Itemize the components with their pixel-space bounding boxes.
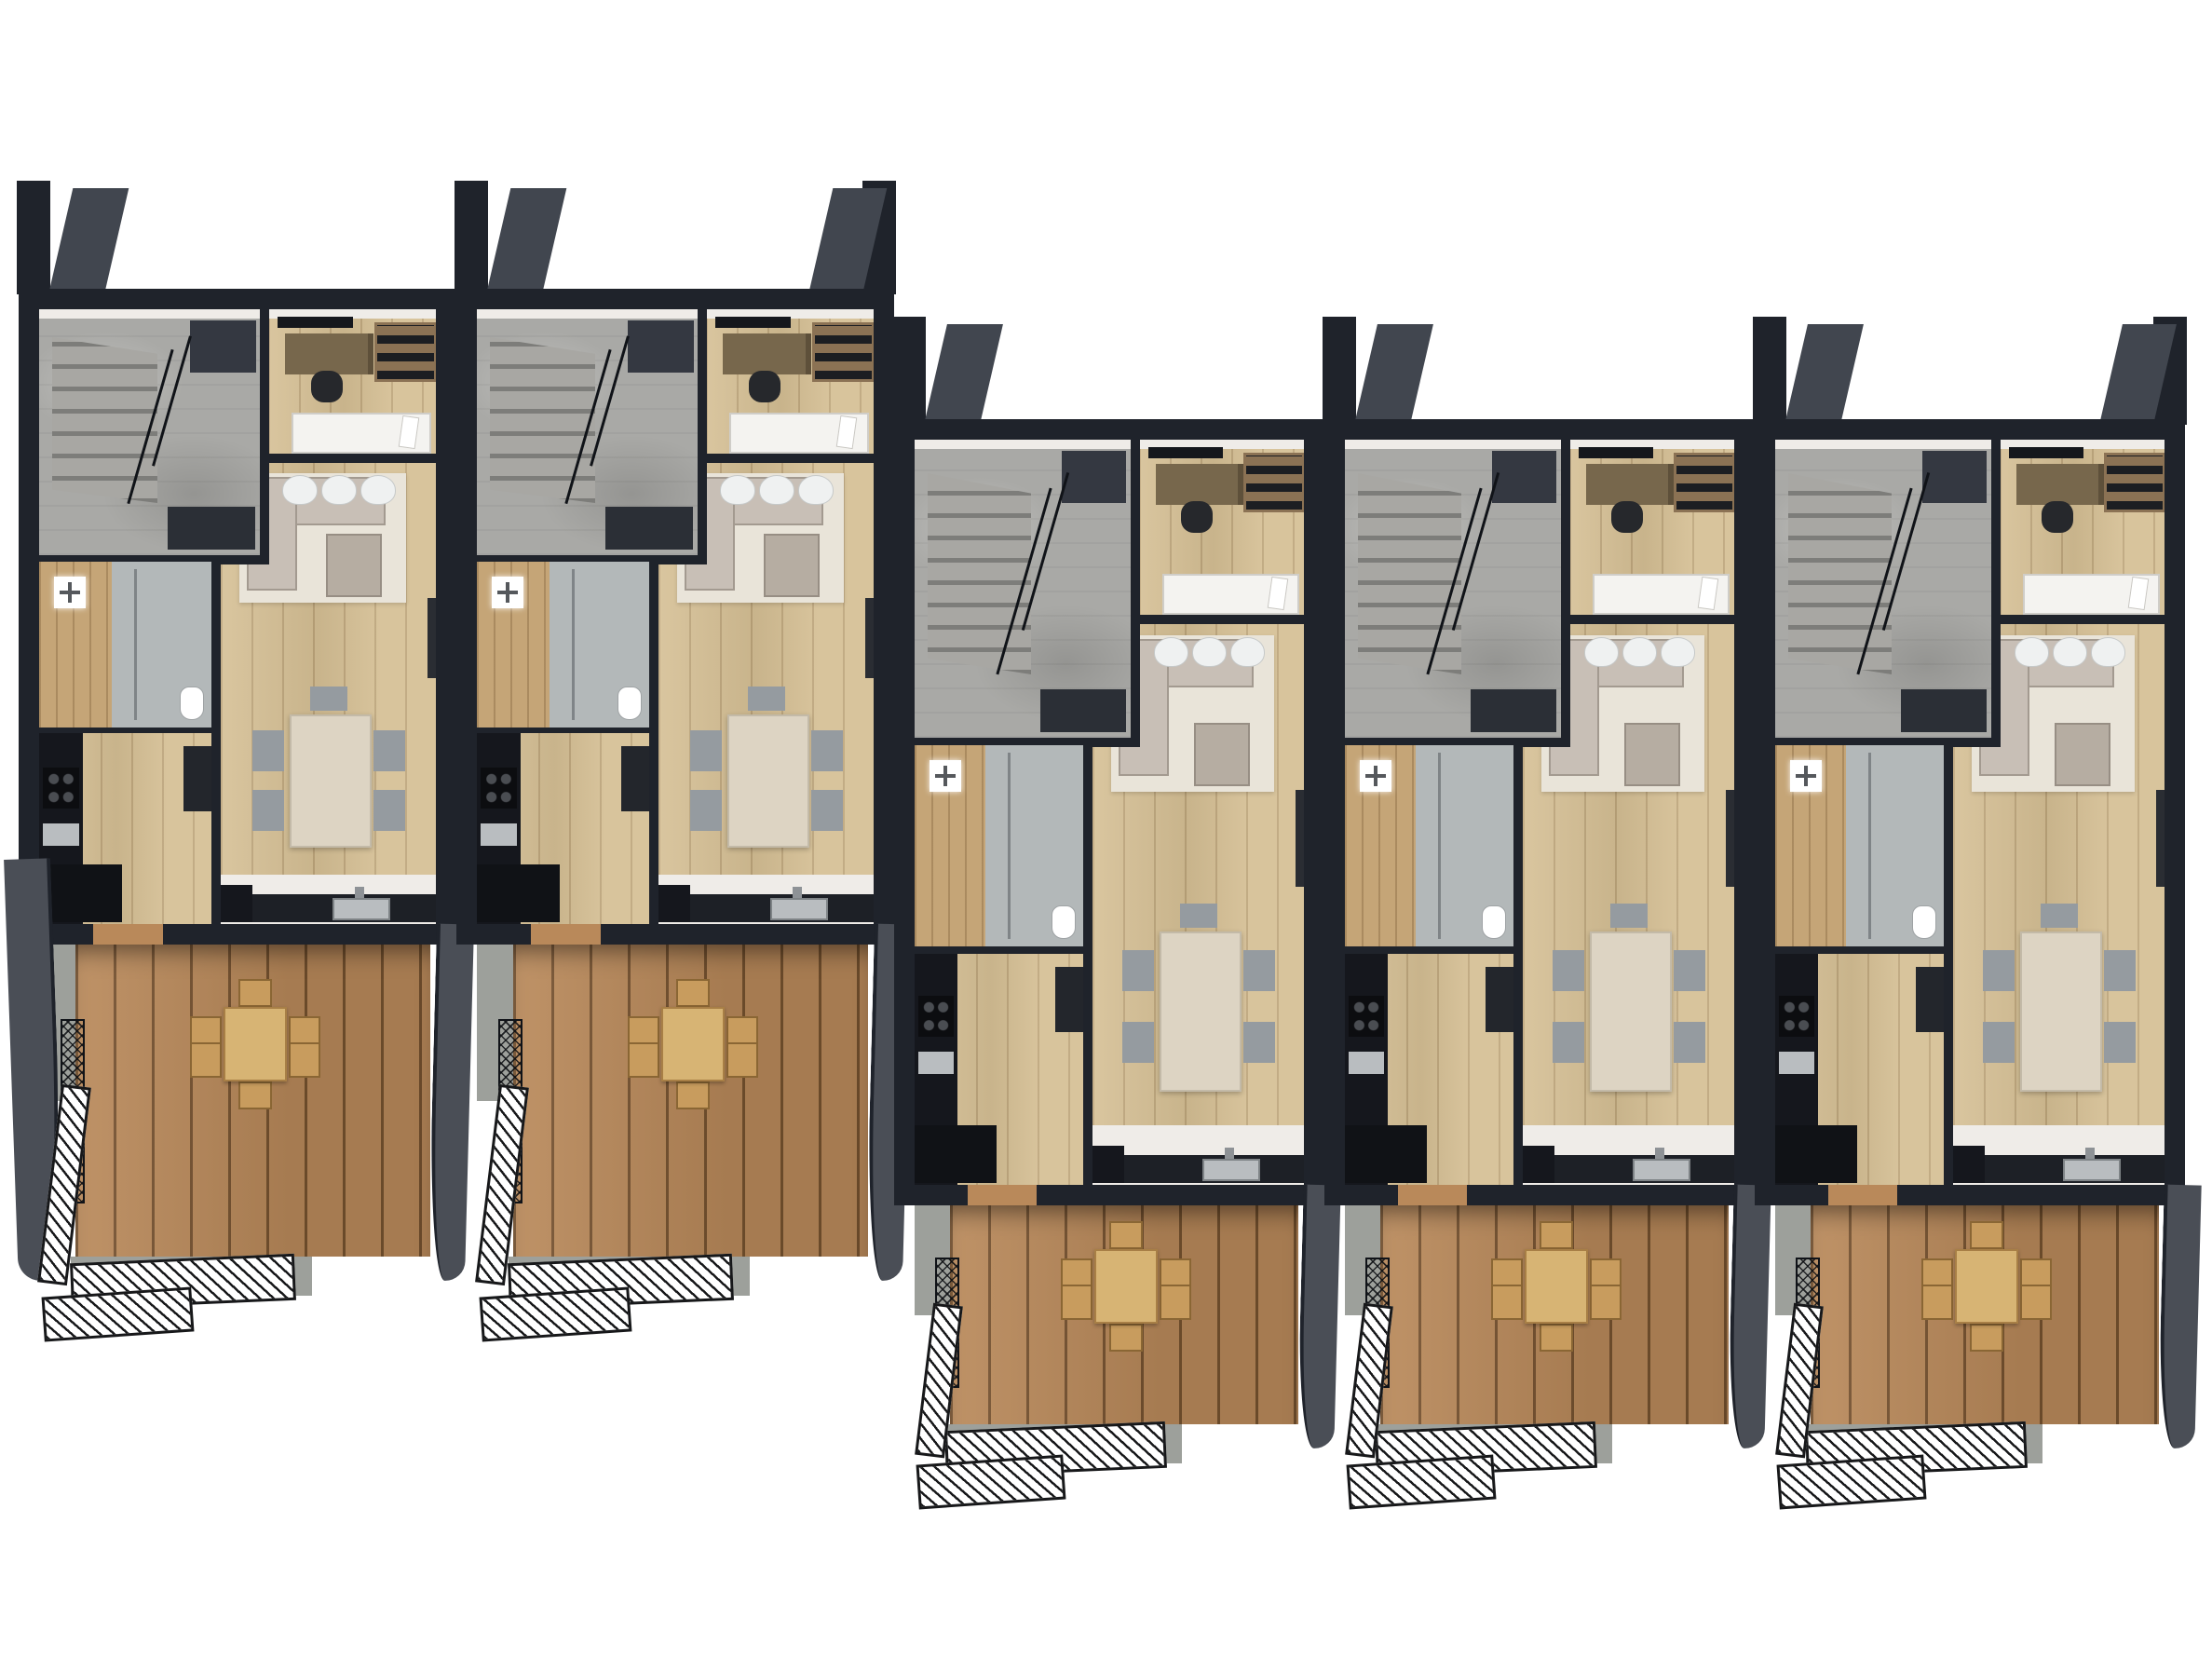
- living-door-panel: [865, 598, 874, 678]
- right-wall: [1304, 419, 1324, 1185]
- dining-chair: [1243, 1022, 1275, 1063]
- toilet: [1482, 905, 1506, 939]
- dining-chair: [1674, 950, 1705, 991]
- fridge: [1775, 1125, 1857, 1183]
- curved-deck-wall: [2157, 1185, 2201, 1449]
- sofa-cushion: [1622, 637, 1657, 667]
- sink-faucet-cross: [1796, 774, 1816, 778]
- desk: [2016, 464, 2104, 505]
- dining-chair: [1553, 950, 1584, 991]
- column-divider-wall: [1513, 738, 1523, 1185]
- stairwell-ceiling-reveal: [1775, 440, 1991, 449]
- top-wall: [19, 289, 456, 309]
- outdoor-chair: [1491, 1285, 1523, 1320]
- sofa-cushion: [720, 475, 755, 505]
- deck-door-opening: [1828, 1185, 1897, 1205]
- counter-end-cabinet: [221, 885, 252, 922]
- stair-landing: [1062, 451, 1126, 503]
- dining-chair: [811, 730, 843, 771]
- office-chair: [2042, 501, 2073, 533]
- kitchen-sink: [770, 898, 828, 920]
- outdoor-chair: [726, 1042, 758, 1078]
- living-door-panel: [1296, 790, 1304, 887]
- dining-chair: [2104, 950, 2136, 991]
- dining-table: [290, 714, 372, 848]
- oven: [918, 1052, 954, 1074]
- party-wall-fin: [1753, 317, 1786, 425]
- stairwell-dark-patch: [1901, 689, 1987, 732]
- stair-partition-wall: [1131, 440, 1140, 747]
- sink-faucet-cross: [60, 591, 80, 594]
- shower-glass-line: [1438, 753, 1441, 939]
- dining-chair: [373, 730, 405, 771]
- stair-landing: [628, 320, 694, 373]
- counter-end-cabinet: [1523, 1146, 1554, 1183]
- outdoor-chair: [238, 979, 272, 1007]
- left-wall: [1755, 419, 1775, 1185]
- kitchen-faucet: [1655, 1148, 1664, 1159]
- dining-chair: [748, 687, 785, 711]
- dining-chair: [1983, 1022, 2015, 1063]
- sofa-cushion: [1154, 637, 1188, 667]
- tv-panel: [715, 317, 791, 328]
- stair-partition-wall: [1991, 440, 2001, 747]
- glass-canopy: [1777, 1455, 1927, 1510]
- dining-chair: [310, 687, 347, 711]
- outdoor-chair: [1970, 1324, 2003, 1352]
- deck-door-opening: [93, 924, 163, 945]
- sofa-cushion: [1230, 637, 1265, 667]
- top-wall: [894, 419, 1324, 440]
- right-wall: [436, 289, 456, 924]
- party-wall-fin: [892, 317, 926, 425]
- fridge: [477, 864, 560, 922]
- outdoor-chair: [1109, 1324, 1143, 1352]
- coffee-table: [326, 534, 382, 597]
- outdoor-chair: [190, 1042, 222, 1078]
- party-wall-fin-face: [924, 324, 1003, 425]
- dining-table: [727, 714, 809, 848]
- sofa-cushion: [2053, 637, 2087, 667]
- stairwell-dark-patch: [605, 507, 693, 550]
- coffee-table: [764, 534, 820, 597]
- stairwell-dark-patch: [168, 507, 255, 550]
- counter-end-cabinet: [1953, 1146, 1985, 1183]
- desk: [723, 333, 811, 374]
- oven: [43, 823, 79, 846]
- stairwell-ceiling-reveal: [39, 309, 260, 319]
- floor-plan-scene: [0, 0, 2212, 1659]
- curved-deck-wall: [1727, 1185, 1771, 1449]
- kitchen-faucet: [2085, 1148, 2095, 1159]
- dining-chair: [1243, 950, 1275, 991]
- cooktop: [918, 996, 954, 1037]
- kitchen-sink: [332, 898, 390, 920]
- party-wall-fin-face: [1785, 324, 1864, 425]
- office-chair: [749, 371, 780, 402]
- office-bottom-wall: [697, 454, 874, 463]
- stair-landing: [1922, 451, 1987, 503]
- glass-canopy: [916, 1455, 1066, 1510]
- coffee-table: [2055, 723, 2110, 786]
- left-wall: [456, 289, 477, 924]
- right-wall: [2165, 419, 2185, 1185]
- desk: [1586, 464, 1674, 505]
- concrete-stairs: [928, 473, 1031, 674]
- outdoor-chair: [289, 1042, 320, 1078]
- office-bottom-wall: [1560, 615, 1734, 624]
- oven: [481, 823, 517, 846]
- party-wall-fin: [1323, 317, 1356, 425]
- deck-door-opening: [531, 924, 601, 945]
- concrete-stairs: [490, 337, 595, 503]
- right-wall: [874, 289, 894, 924]
- outdoor-chair: [676, 979, 710, 1007]
- kitchen-wall-cabinet: [183, 746, 211, 811]
- sofa-cushion: [321, 475, 357, 505]
- curved-deck-wall: [427, 924, 474, 1282]
- office-chair: [311, 371, 343, 402]
- toilet: [617, 687, 642, 720]
- stairwell-dark-patch: [1471, 689, 1556, 732]
- outdoor-chair: [238, 1081, 272, 1109]
- outdoor-chair: [1540, 1324, 1573, 1352]
- sofa-cushion: [282, 475, 318, 505]
- dining-chair: [690, 730, 722, 771]
- dining-table: [1160, 931, 1242, 1092]
- outdoor-table: [661, 1007, 725, 1081]
- outdoor-table: [1525, 1249, 1588, 1324]
- dining-table: [2020, 931, 2102, 1092]
- outdoor-chair: [628, 1042, 659, 1078]
- sofa-cushion: [798, 475, 834, 505]
- sofa-cushion: [2091, 637, 2125, 667]
- wardrobe-cabinet: [374, 322, 437, 382]
- sofa-cushion: [1584, 637, 1619, 667]
- bottom-wall: [1755, 1185, 2185, 1205]
- dining-chair: [252, 790, 284, 831]
- party-wall-fin: [455, 181, 488, 294]
- deck-door-opening: [1398, 1185, 1467, 1205]
- wardrobe-cabinet: [1243, 453, 1305, 512]
- left-wall: [894, 419, 915, 1185]
- concrete-stairs: [1788, 473, 1892, 674]
- kitchen-faucet: [793, 887, 802, 898]
- kitchen-sink: [1202, 1159, 1260, 1181]
- sofa-cushion: [360, 475, 396, 505]
- shower-glass-line: [572, 569, 575, 720]
- toilet: [1912, 905, 1936, 939]
- sink-faucet-cross: [935, 774, 956, 778]
- stairwell-ceiling-reveal: [477, 309, 698, 319]
- counter-end-cabinet: [1092, 1146, 1124, 1183]
- dining-chair: [373, 790, 405, 831]
- living-door-panel: [2156, 790, 2165, 887]
- party-wall-fin-face: [1354, 324, 1433, 425]
- dining-chair: [1180, 904, 1217, 928]
- stairwell-ceiling-reveal: [915, 440, 1131, 449]
- stairwell-dark-patch: [1040, 689, 1126, 732]
- kitchen-wall-cabinet: [1055, 967, 1083, 1032]
- coffee-table: [1624, 723, 1680, 786]
- fridge: [915, 1125, 997, 1183]
- oven: [1349, 1052, 1384, 1074]
- sofa-cushion: [759, 475, 794, 505]
- outdoor-chair: [676, 1081, 710, 1109]
- wardrobe-cabinet: [1674, 453, 1735, 512]
- cooktop: [481, 768, 517, 809]
- column-divider-wall: [649, 555, 658, 924]
- stairwell-ceiling-reveal: [1345, 440, 1561, 449]
- stair-partition-wall: [698, 309, 707, 564]
- kitchen-sink: [2063, 1159, 2121, 1181]
- dining-chair: [1674, 1022, 1705, 1063]
- shower-glass-line: [1008, 753, 1011, 939]
- stair-landing: [190, 320, 256, 373]
- living-door-panel: [427, 598, 436, 678]
- top-wall: [456, 289, 894, 309]
- glass-canopy: [480, 1286, 632, 1341]
- dining-chair: [1553, 1022, 1584, 1063]
- bottom-wall: [894, 1185, 1324, 1205]
- dining-chair: [252, 730, 284, 771]
- desk: [1156, 464, 1243, 505]
- column-divider-wall: [1944, 738, 1953, 1185]
- kitchen-faucet: [355, 887, 364, 898]
- left-wall: [19, 289, 39, 924]
- left-wall: [1324, 419, 1345, 1185]
- bottom-wall: [19, 924, 456, 945]
- top-wall: [1755, 419, 2185, 440]
- shower-glass-line: [1868, 753, 1871, 939]
- sink-faucet-cross: [497, 591, 518, 594]
- bottom-wall: [1324, 1185, 1755, 1205]
- concrete-stairs: [52, 337, 157, 503]
- tv-panel: [1579, 447, 1653, 458]
- kitchen-wall-cabinet: [621, 746, 649, 811]
- bottom-wall: [456, 924, 894, 945]
- office-chair: [1181, 501, 1213, 533]
- sofa-cushion: [1192, 637, 1227, 667]
- stair-landing: [1492, 451, 1556, 503]
- sink-faucet-cross: [1365, 774, 1386, 778]
- wardrobe-cabinet: [2104, 453, 2165, 512]
- party-wall-fin-face: [486, 188, 566, 294]
- column-divider-wall: [211, 555, 221, 924]
- glass-canopy: [1347, 1455, 1497, 1510]
- dining-table: [1590, 931, 1672, 1092]
- tv-panel: [2009, 447, 2083, 458]
- cooktop: [1349, 996, 1384, 1037]
- curved-deck-wall: [1296, 1185, 1340, 1449]
- kitchen-faucet: [1225, 1148, 1234, 1159]
- dining-chair: [1122, 1022, 1154, 1063]
- dining-chair: [2041, 904, 2078, 928]
- dining-chair: [1122, 950, 1154, 991]
- top-wall: [1324, 419, 1755, 440]
- oven: [1779, 1052, 1814, 1074]
- tv-panel: [1148, 447, 1223, 458]
- living-door-panel: [1726, 790, 1734, 887]
- office-bottom-wall: [1130, 615, 1304, 624]
- cooktop: [1779, 996, 1814, 1037]
- outdoor-chair: [2020, 1285, 2052, 1320]
- sofa-cushion: [1661, 637, 1695, 667]
- toilet: [1052, 905, 1076, 939]
- tv-panel: [278, 317, 353, 328]
- outdoor-table: [1955, 1249, 2018, 1324]
- dining-chair: [1983, 950, 2015, 991]
- outdoor-chair: [1921, 1285, 1953, 1320]
- right-wall: [1734, 419, 1755, 1185]
- deck-door-opening: [968, 1185, 1037, 1205]
- office-chair: [1611, 501, 1643, 533]
- dining-chair: [1610, 904, 1648, 928]
- outdoor-chair: [1540, 1221, 1573, 1249]
- party-wall-fin-face: [48, 188, 129, 294]
- cooktop: [43, 768, 79, 809]
- kitchen-sink: [1633, 1159, 1690, 1181]
- toilet: [180, 687, 204, 720]
- shower-glass-line: [134, 569, 137, 720]
- outdoor-table: [1094, 1249, 1158, 1324]
- sofa-cushion: [2015, 637, 2049, 667]
- dining-chair: [2104, 1022, 2136, 1063]
- column-divider-wall: [1083, 738, 1092, 1185]
- office-bottom-wall: [259, 454, 436, 463]
- outdoor-chair: [1970, 1221, 2003, 1249]
- counter-end-cabinet: [658, 885, 690, 922]
- outdoor-chair: [1109, 1221, 1143, 1249]
- outdoor-chair: [1590, 1285, 1622, 1320]
- outdoor-chair: [1061, 1285, 1092, 1320]
- dining-chair: [811, 790, 843, 831]
- kitchen-wall-cabinet: [1916, 967, 1944, 1032]
- desk: [285, 333, 373, 374]
- fridge: [1345, 1125, 1427, 1183]
- stair-partition-wall: [260, 309, 269, 564]
- glass-canopy: [42, 1286, 195, 1341]
- concrete-stairs: [1358, 473, 1461, 674]
- outdoor-chair: [1160, 1285, 1191, 1320]
- wardrobe-cabinet: [812, 322, 875, 382]
- stair-partition-wall: [1561, 440, 1570, 747]
- outdoor-table: [224, 1007, 287, 1081]
- coffee-table: [1194, 723, 1250, 786]
- dining-chair: [690, 790, 722, 831]
- party-wall-fin: [17, 181, 50, 294]
- kitchen-wall-cabinet: [1486, 967, 1513, 1032]
- office-bottom-wall: [1990, 615, 2165, 624]
